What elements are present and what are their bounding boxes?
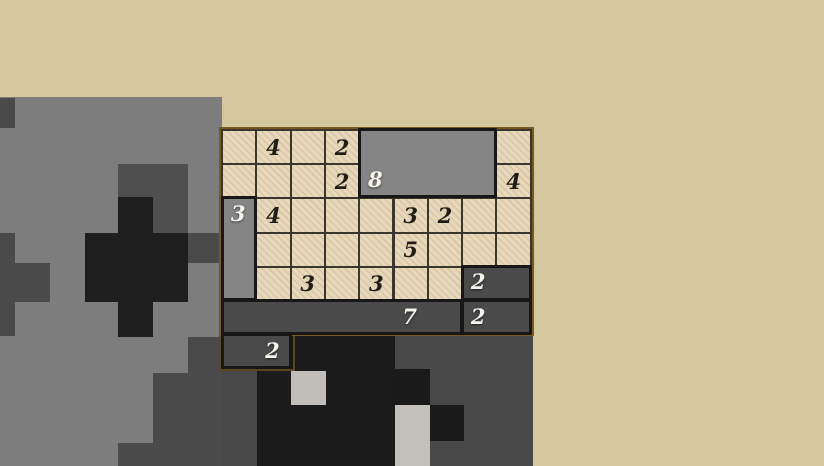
terrain-black-horizontal (85, 233, 188, 302)
grid-cell-r4c3[interactable] (326, 268, 358, 300)
grid-cell-r4c5[interactable] (395, 268, 427, 300)
grid-cell-r3c7[interactable] (463, 234, 495, 266)
grid-cell-r2c6[interactable]: 2 (429, 199, 461, 231)
terrain-dark-notch-topleft (0, 98, 15, 128)
bottom-black-left (257, 371, 292, 466)
grid-cell-r0c1[interactable]: 4 (257, 131, 289, 163)
block-2-bottom[interactable]: 2 (221, 333, 292, 369)
terrain-dark-right-nub (188, 233, 222, 263)
bottom-black-right (430, 405, 464, 441)
grid-cell-r2c2[interactable] (292, 199, 324, 231)
grid-cell-r4c4[interactable]: 3 (360, 268, 392, 300)
block-2-right-lower[interactable]: 2 (461, 299, 532, 335)
grid-cell-r2c5[interactable]: 3 (395, 199, 427, 231)
grid-cell-r2c8[interactable] (497, 199, 529, 231)
grid-cell-r1c1[interactable] (257, 165, 289, 197)
clue-number: 3 (395, 199, 427, 231)
clue-number: 2 (429, 199, 461, 231)
terrain-dark-bottomleft (153, 373, 222, 466)
grid-cell-r1c0[interactable] (223, 165, 255, 197)
block-7[interactable]: 7 (221, 299, 463, 335)
block-area-label: 2 (461, 299, 495, 333)
grid-cell-r2c3[interactable] (326, 199, 358, 231)
block-3-vertical[interactable]: 3 (221, 196, 257, 301)
clue-number: 2 (326, 165, 358, 197)
terrain-dark-bottom-step (118, 443, 153, 466)
bottom-light-square (291, 371, 326, 405)
block-area-label: 2 (255, 333, 289, 367)
terrain-dark-under-board (188, 337, 222, 373)
grid-cell-r3c3[interactable] (326, 234, 358, 266)
bottom-light-column (395, 405, 430, 466)
clue-number: 4 (257, 131, 289, 163)
clue-number: 4 (257, 199, 289, 231)
clue-number: 2 (326, 131, 358, 163)
block-area-label: 7 (393, 299, 427, 333)
bottom-black-mid (395, 369, 430, 405)
grid-cell-r3c1[interactable] (257, 234, 289, 266)
block-8[interactable]: 8 (358, 128, 497, 198)
clue-number: 3 (360, 268, 392, 300)
block-area-label: 2 (461, 265, 495, 299)
grid-cell-r0c0[interactable] (223, 131, 255, 163)
terrain-dark-left-strip (0, 233, 15, 336)
block-2-right-upper[interactable]: 2 (461, 265, 532, 301)
clue-number: 3 (292, 268, 324, 300)
grid-cell-r2c1[interactable]: 4 (257, 199, 289, 231)
grid-cell-r3c4[interactable] (360, 234, 392, 266)
grid-cell-r4c6[interactable] (429, 268, 461, 300)
grid-cell-r1c2[interactable] (292, 165, 324, 197)
grid-cell-r1c8[interactable]: 4 (497, 165, 529, 197)
terrain-dark-left-arm (15, 263, 50, 302)
clue-number: 5 (395, 234, 427, 266)
grid-cell-r2c7[interactable] (463, 199, 495, 231)
grid-cell-r3c6[interactable] (429, 234, 461, 266)
game-scene: 4224432533832722 (0, 0, 824, 466)
clue-number: 4 (497, 165, 529, 197)
block-area-label: 3 (221, 196, 255, 230)
grid-cell-r4c1[interactable] (257, 268, 289, 300)
grid-cell-r0c8[interactable] (497, 131, 529, 163)
grid-cell-r1c3[interactable]: 2 (326, 165, 358, 197)
grid-cell-r4c2[interactable]: 3 (292, 268, 324, 300)
grid-cell-r0c2[interactable] (292, 131, 324, 163)
grid-cell-r3c8[interactable] (497, 234, 529, 266)
grid-cell-r3c2[interactable] (292, 234, 324, 266)
block-area-label: 8 (358, 162, 392, 196)
grid-cell-r0c3[interactable]: 2 (326, 131, 358, 163)
puzzle-board: 4224432533832722 (219, 127, 534, 336)
grid-cell-r3c5[interactable]: 5 (395, 234, 427, 266)
grid-cell-r2c4[interactable] (360, 199, 392, 231)
